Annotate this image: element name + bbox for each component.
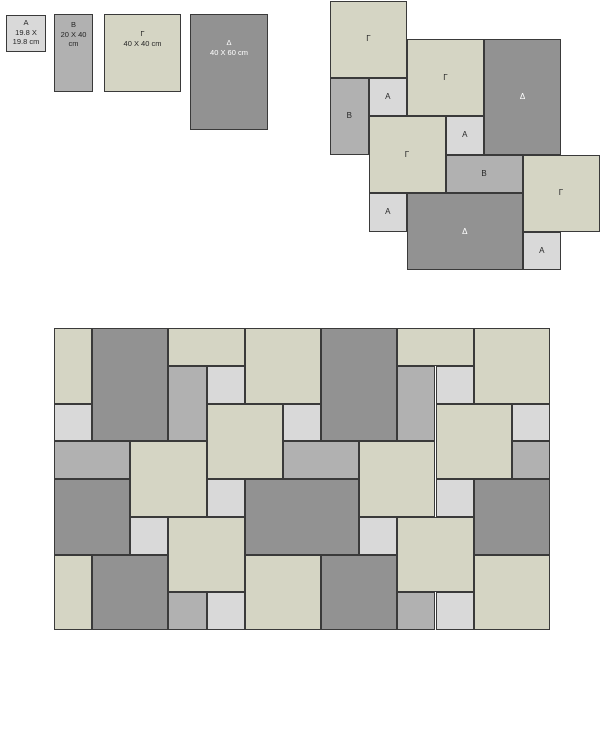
floor-tile-d (321, 555, 397, 631)
floor-tile-g (54, 555, 92, 631)
floor-tile-g (130, 441, 206, 517)
floor-tile-b (397, 592, 435, 630)
floor-tile-g (54, 328, 92, 404)
floor-tile-g (207, 404, 283, 480)
floor-tile-d (92, 555, 168, 631)
floor-tile-g (397, 517, 473, 593)
floor-tile-g (474, 328, 550, 404)
floor-tile-b (283, 441, 359, 479)
floor-tile-g (168, 517, 244, 593)
floor-tile-g (359, 441, 435, 517)
floor-tile-d (474, 479, 550, 555)
floor-tile-a (207, 366, 245, 404)
floor-tile-a (130, 517, 168, 555)
floor-tile-b (168, 592, 206, 630)
floor-tile-a (283, 404, 321, 442)
floor-tile-a (436, 592, 474, 630)
floor-tile-g (245, 328, 321, 404)
floor-tile-a (359, 517, 397, 555)
floor-tile-g (397, 328, 473, 366)
floor-tile-d (92, 328, 168, 441)
floor-tile-b (512, 441, 550, 479)
floor-tile-a (512, 404, 550, 442)
floor-tile-a (436, 479, 474, 517)
floor-tile-a (436, 366, 474, 404)
floor-tile-b (54, 441, 130, 479)
floor-tile-b (168, 366, 206, 442)
floor-tile-a (207, 479, 245, 517)
tile-plan-canvas: A19.8 X19.8 cmB20 X 40cmΓ40 X 40 cmΔ40 X… (0, 0, 600, 732)
floor-tile-g (245, 555, 321, 631)
floor-tile-b (397, 366, 435, 442)
floor-tile-a (207, 592, 245, 630)
floor-tile-g (168, 328, 244, 366)
floor-tile-a (54, 404, 92, 442)
floor-tile-g (436, 404, 512, 480)
floor-plan (0, 0, 600, 732)
floor-tile-g (474, 555, 550, 631)
floor-tile-d (321, 328, 397, 441)
floor-tile-d (245, 479, 359, 555)
floor-tile-d (54, 479, 130, 555)
